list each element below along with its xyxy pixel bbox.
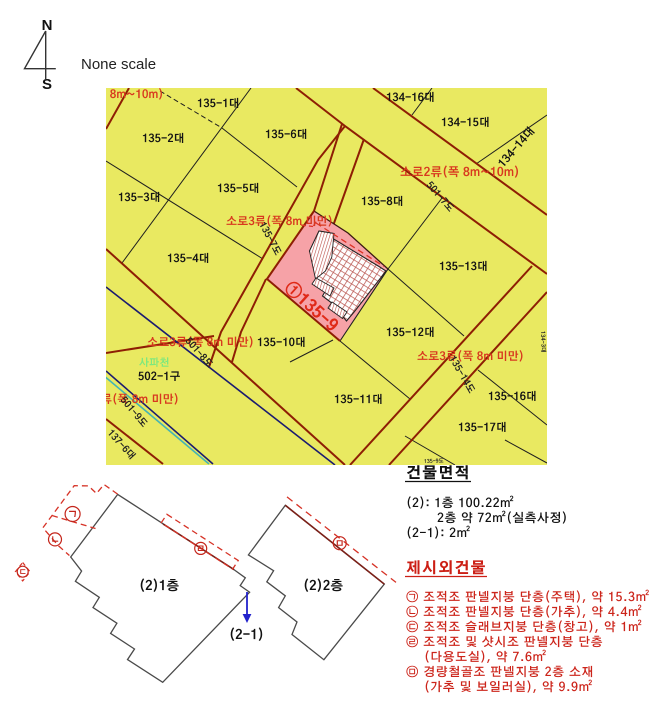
- svg-text:None scale: None scale: [81, 56, 156, 73]
- svg-text:S: S: [42, 76, 52, 93]
- svg-text:N: N: [42, 17, 53, 34]
